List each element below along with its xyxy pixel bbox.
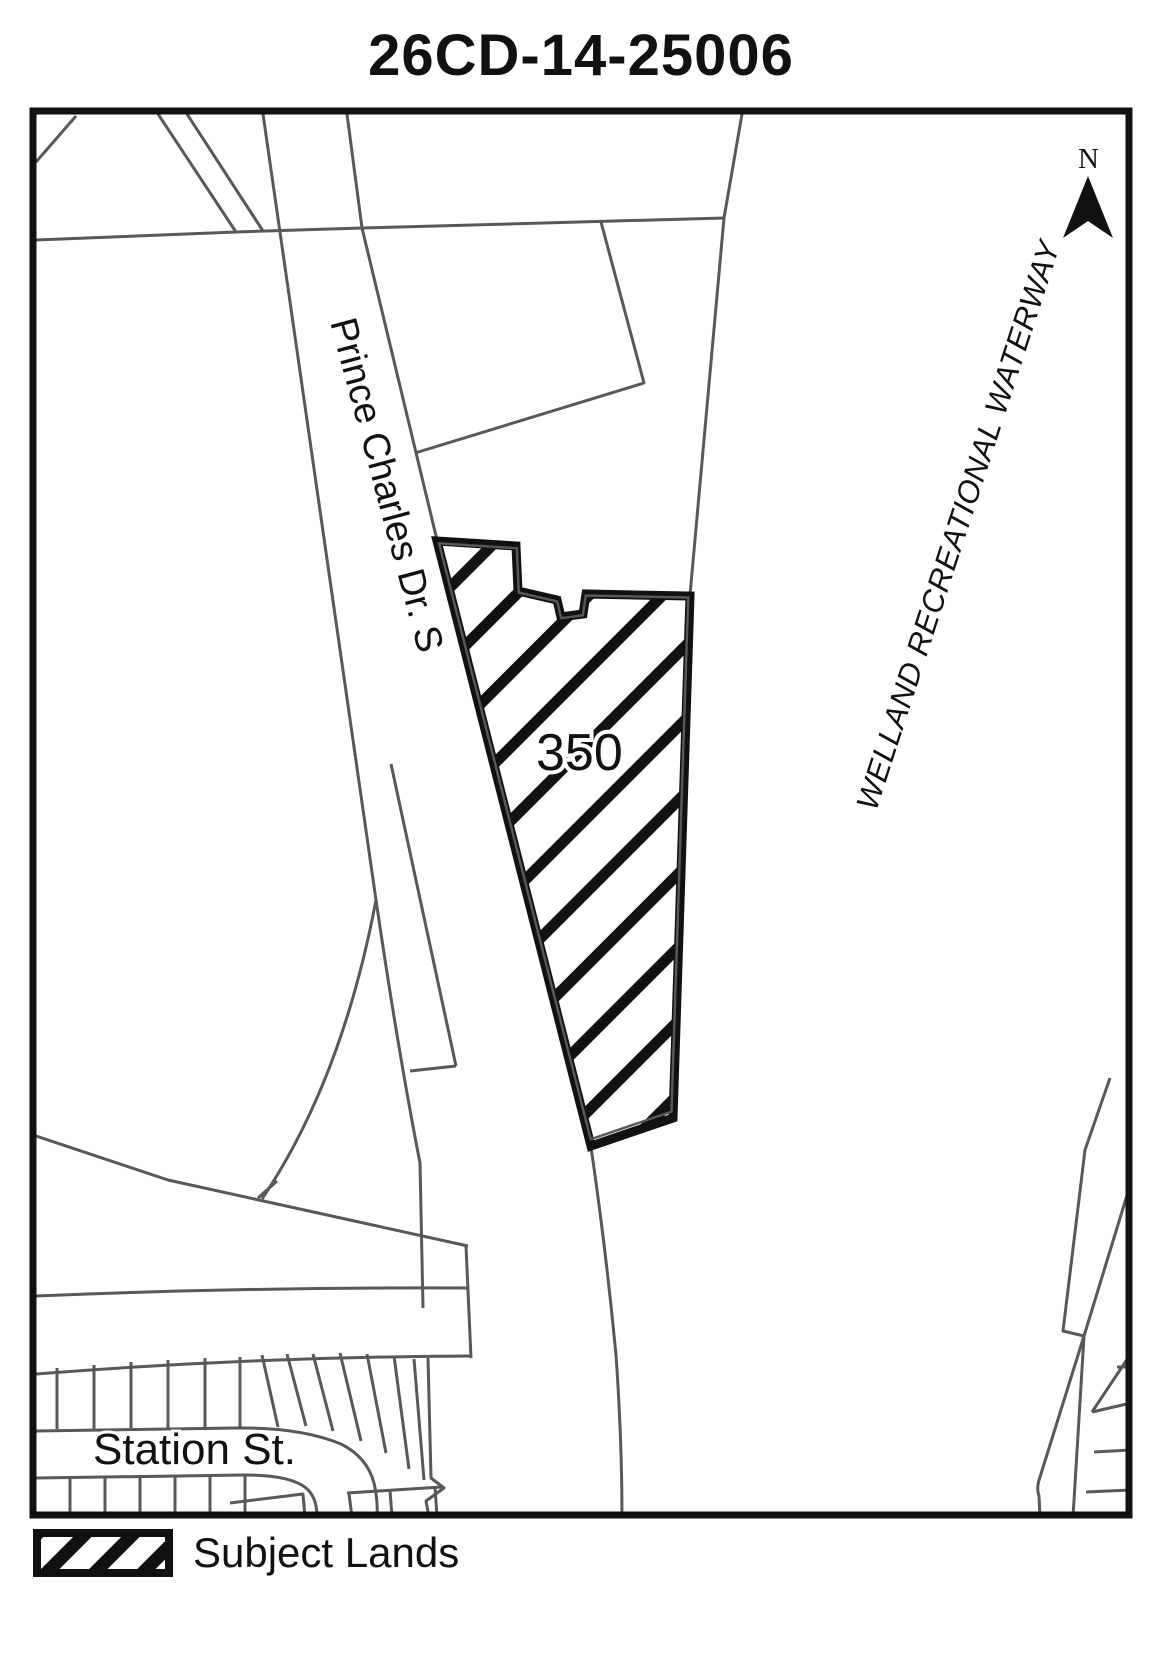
map-page: 26CD-14-25006 (0, 0, 1166, 1654)
legend-swatch-icon (33, 1529, 173, 1577)
map-canvas: 350 Prince Charles Dr. S WELLAND RECREAT… (0, 0, 1166, 1654)
subject-lands-swatch (37, 1533, 169, 1573)
legend: Subject Lands (33, 1529, 459, 1577)
north-letter: N (1078, 143, 1099, 175)
legend-label: Subject Lands (193, 1529, 459, 1577)
parcel-number-label: 350 (536, 724, 623, 782)
cross-street-name-label: Station St. (93, 1425, 296, 1474)
